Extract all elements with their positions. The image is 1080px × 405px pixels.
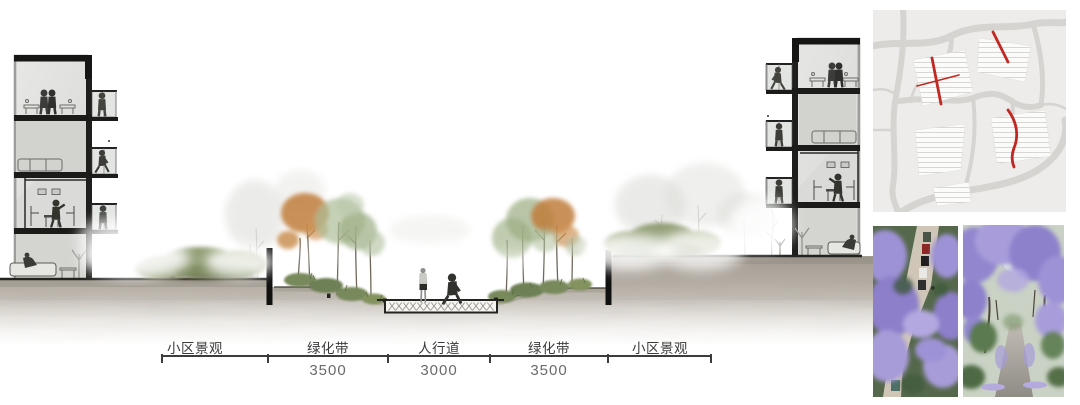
segment-label-sidewalk: 人行道 [388, 337, 490, 357]
segment-label-greenbelt-left: 绿化带 [268, 337, 388, 357]
segment-label-community-left: 小区景观 [167, 337, 223, 357]
site-plan-map [873, 10, 1066, 212]
segment-label-greenbelt-right: 绿化带 [490, 337, 608, 357]
dimension-tick [161, 354, 163, 363]
photo-jacaranda-street-aerial [873, 226, 958, 397]
pedestrian-figures [420, 268, 462, 304]
dimension-value-greenbelt-right: 3500 [490, 362, 608, 379]
dimension-value-sidewalk: 3000 [388, 362, 490, 379]
dimension-value-greenbelt-left: 3500 [268, 362, 388, 379]
pedestrian-walkway [377, 300, 504, 313]
design-board: 小区景观 绿化带 人行道 绿化带 小区景观 3500 3000 3500 [0, 0, 1080, 405]
photo-jacaranda-avenue [963, 225, 1064, 397]
segment-label-community-right: 小区景观 [608, 337, 712, 357]
